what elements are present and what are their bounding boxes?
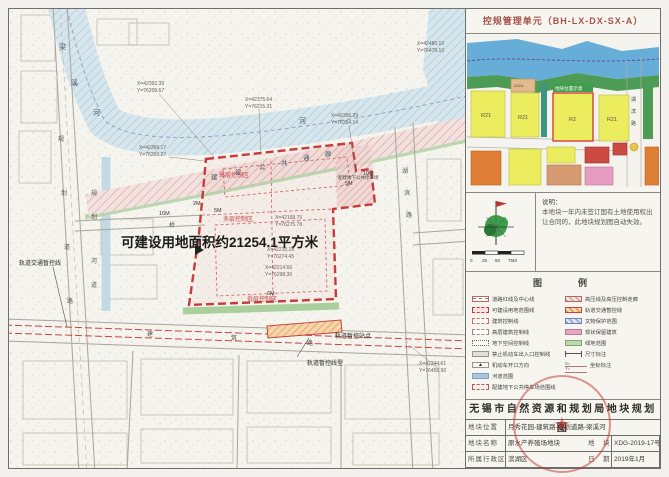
svg-text:建: 建 [211, 172, 218, 181]
svg-text:R21: R21 [518, 115, 528, 121]
legend-title: 图 例 [472, 276, 654, 289]
svg-text:75M: 75M [508, 258, 517, 263]
svg-text:划: 划 [61, 189, 67, 197]
building-control-swatch [472, 318, 489, 324]
svg-text:X=42375.64: X=42375.64 [245, 97, 272, 103]
svg-text:建: 建 [147, 330, 153, 338]
buildable-range-swatch [472, 307, 489, 313]
svg-text:规: 规 [58, 135, 64, 143]
high-voltage-swatch [565, 296, 582, 302]
parcel-map: 可建设用地面积约21254.1平方米 高层控制区 多层控制区 低层控制区 配建地… [9, 9, 465, 468]
keymap-canvas: R21 A32a R21 R2 R21 地块位置示意 湖 滨 路 [467, 35, 659, 187]
sheet-title: 无锡市自然资源和规划局地块规划图 [466, 400, 660, 420]
unit-title: 控规管理单元（BH-LX-DX-SX-A） [483, 16, 644, 26]
legend-item: 现状保留建筑 [565, 326, 654, 337]
svg-text:50: 50 [495, 258, 501, 263]
svg-text:Y=76479.10: Y=76479.10 [417, 48, 444, 54]
svg-text:X=42480.10: X=42480.10 [417, 41, 444, 47]
svg-text:河: 河 [91, 257, 97, 265]
svg-text:Y=76298.30: Y=76298.30 [265, 272, 292, 278]
notes-body: 本地块一年内未签订国有土地使用权出让合同的，此地块规划图自动失效。 [542, 209, 653, 226]
svg-text:道: 道 [91, 281, 97, 289]
parcel-location-label: 地块位置 [466, 420, 506, 436]
svg-text:溪: 溪 [71, 78, 78, 87]
north-arrow-scale: 0 25 50 75M [466, 193, 534, 269]
svg-text:16M: 16M [159, 211, 170, 217]
svg-text:25: 25 [482, 258, 488, 263]
legend-item: X= Y= 坐标标注 [565, 359, 654, 370]
legend-item: 地下空间控制线 [472, 337, 561, 348]
svg-text:X=42369.17: X=42369.17 [139, 145, 166, 151]
bridge-label: 桥 [169, 221, 175, 229]
title-block: 无锡市自然资源和规划局地块规划图 地块位置 月秀花园-建筑路-规划道路-梁溪河 … [466, 400, 660, 469]
notes-label: 说明： [542, 198, 654, 208]
rail-control-label: 轨道交通暂控线 [19, 259, 61, 267]
svg-text:路: 路 [631, 120, 636, 127]
svg-text:Y=76354.14: Y=76354.14 [331, 120, 358, 126]
svg-text:划: 划 [91, 213, 97, 221]
svg-text:公: 公 [259, 164, 266, 171]
svg-text:Y=76215.31: Y=76215.31 [245, 104, 272, 110]
svg-text:R2: R2 [569, 117, 576, 123]
scale-bar: 0 25 50 75M [470, 251, 524, 263]
svg-text:R21: R21 [607, 117, 617, 123]
svg-text:X=42392.39: X=42392.39 [137, 81, 164, 87]
svg-text:Y=76203.27: Y=76203.27 [139, 152, 166, 158]
vehicle-opening-swatch: ▲ [472, 362, 489, 368]
svg-text:河: 河 [299, 117, 306, 125]
district-label: 所属行政区 [466, 452, 506, 468]
svg-text:R21: R21 [481, 113, 491, 119]
legend-item: 建筑控制线 [472, 315, 561, 326]
legend-item: 绿地范围 [565, 337, 654, 348]
svg-text:5M: 5M [345, 181, 353, 187]
legend-item: 禁止机动车出入口控制线 [472, 348, 561, 359]
road-redline-swatch [472, 296, 489, 302]
svg-text:通: 通 [303, 153, 310, 162]
highrise-control-swatch [472, 329, 489, 335]
keymap-location-tag: 地块位置示意 [555, 85, 583, 92]
svg-text:路: 路 [307, 339, 313, 347]
north-arrow-icon [478, 201, 514, 245]
date-value: 2019年1月 [612, 452, 660, 468]
legend-item: 高层建筑控制线 [472, 326, 561, 337]
svg-text:湖: 湖 [402, 167, 408, 175]
no-vehicle-entry-swatch [472, 351, 489, 357]
svg-text:设: 设 [235, 167, 242, 176]
svg-text:5M: 5M [214, 208, 222, 214]
parcel-no-value: XDG-2019-17号 [612, 436, 660, 452]
district-value: 滨湖区 [506, 452, 586, 468]
notes-box: 说明： 本地块一年内未签订国有土地使用权出让合同的，此地块规划图自动失效。 [536, 193, 660, 271]
svg-text:筑: 筑 [231, 334, 237, 342]
rail-control-swatch [565, 307, 582, 313]
zone-midrise: 多层控制区 [223, 215, 253, 223]
svg-text:0: 0 [470, 258, 473, 263]
green-space-swatch [565, 340, 582, 346]
date-label: 日 期 [586, 452, 612, 468]
keymap-road-label: 湖 滨 路 [631, 96, 636, 127]
legend-item: 高压线及高压控制走廊 [565, 293, 654, 304]
rail-alignment-label: 轨道暂控线型 [307, 359, 343, 367]
drawing-frame: 可建设用地面积约21254.1平方米 高层控制区 多层控制区 低层控制区 配建地… [8, 8, 661, 469]
svg-text:河: 河 [93, 109, 100, 117]
svg-text:6M: 6M [267, 291, 275, 297]
svg-text:X=42356.29: X=42356.29 [331, 113, 358, 119]
coordinate-swatch: X= Y= [565, 362, 587, 368]
parcel-location-value: 月秀花园-建筑路-规划道路-梁溪河 [506, 420, 660, 436]
svg-text:Y=76458.90: Y=76458.90 [419, 368, 446, 374]
svg-text:Y=76275.78: Y=76275.78 [275, 222, 302, 228]
svg-text:湖: 湖 [631, 96, 636, 103]
legend-right-column: 高压线及高压控制走廊 轨道交通暂控线 文物保护范围 现状保留建筑 绿地范围 尺寸… [565, 293, 654, 392]
svg-text:X=42213.19: X=42213.19 [267, 247, 294, 253]
svg-text:规: 规 [91, 189, 97, 197]
relic-protection-swatch [565, 318, 582, 324]
legend: 图 例 道路红线及中心线 可建设用地范围线 建筑控制线 高层建筑控制线 地下空间… [466, 272, 660, 400]
parcel-no-label: 地 块 [586, 436, 612, 452]
svg-text:Y=76209.67: Y=76209.67 [137, 88, 164, 94]
north-scale-box: 0 25 50 75M [466, 193, 536, 271]
legend-item: 文物保护范围 [565, 315, 654, 326]
svg-text:梁: 梁 [59, 42, 66, 51]
dimension-swatch [565, 351, 582, 357]
svg-text:2M: 2M [193, 201, 201, 207]
svg-text:X=42344.61: X=42344.61 [419, 361, 446, 367]
svg-text:滨: 滨 [631, 108, 636, 115]
retained-building-swatch [565, 329, 582, 335]
rail-station-label: 轨道暂控站点 [335, 332, 371, 340]
svg-text:滨: 滨 [404, 189, 410, 197]
svg-text:共: 共 [281, 158, 288, 167]
location-keymap: R21 A32a R21 R2 R21 地块位置示意 湖 滨 路 [466, 34, 660, 193]
legend-item: 配建地下公共停车场范围线 [472, 381, 561, 392]
plan-sheet: 可建设用地面积约21254.1平方米 高层控制区 多层控制区 低层控制区 配建地… [0, 0, 669, 477]
svg-text:Y=76274.45: Y=76274.45 [267, 254, 294, 260]
legend-item: 尺寸标注 [565, 348, 654, 359]
underground-control-swatch [472, 340, 489, 346]
legend-left-column: 道路红线及中心线 可建设用地范围线 建筑控制线 高层建筑控制线 地下空间控制线 … [472, 293, 561, 392]
zone-highrise: 高层控制区 [219, 171, 249, 179]
north-notes-row: 0 25 50 75M 说明： 本地块一年内未签订国有土地使用权出让合同的，此地… [466, 193, 660, 272]
legend-item: ▲机动车开口方向 [472, 359, 561, 370]
river-range-swatch [472, 373, 489, 379]
legend-item: 可建设用地范围线 [472, 304, 561, 315]
svg-text:10M: 10M [363, 171, 374, 177]
unit-header: 控规管理单元（BH-LX-DX-SX-A） [466, 9, 660, 34]
svg-text:X=42214.66: X=42214.66 [265, 265, 292, 271]
legend-item: 轨道交通暂控线 [565, 304, 654, 315]
svg-text:路: 路 [67, 297, 73, 305]
legend-item: 河道范围 [472, 370, 561, 381]
svg-text:道: 道 [64, 243, 70, 251]
parcel-name-value: 原水产养殖场地块 [506, 436, 586, 452]
svg-text:X=42168.75: X=42168.75 [275, 215, 302, 221]
svg-text:廊: 廊 [325, 149, 332, 158]
parcel-name-label: 地块名称 [466, 436, 506, 452]
parking-range-swatch [472, 384, 489, 390]
right-panel: 控规管理单元（BH-LX-DX-SX-A） [465, 9, 660, 468]
svg-text:A32a: A32a [514, 83, 524, 88]
legend-item: 道路红线及中心线 [472, 293, 561, 304]
svg-text:路: 路 [406, 211, 412, 219]
